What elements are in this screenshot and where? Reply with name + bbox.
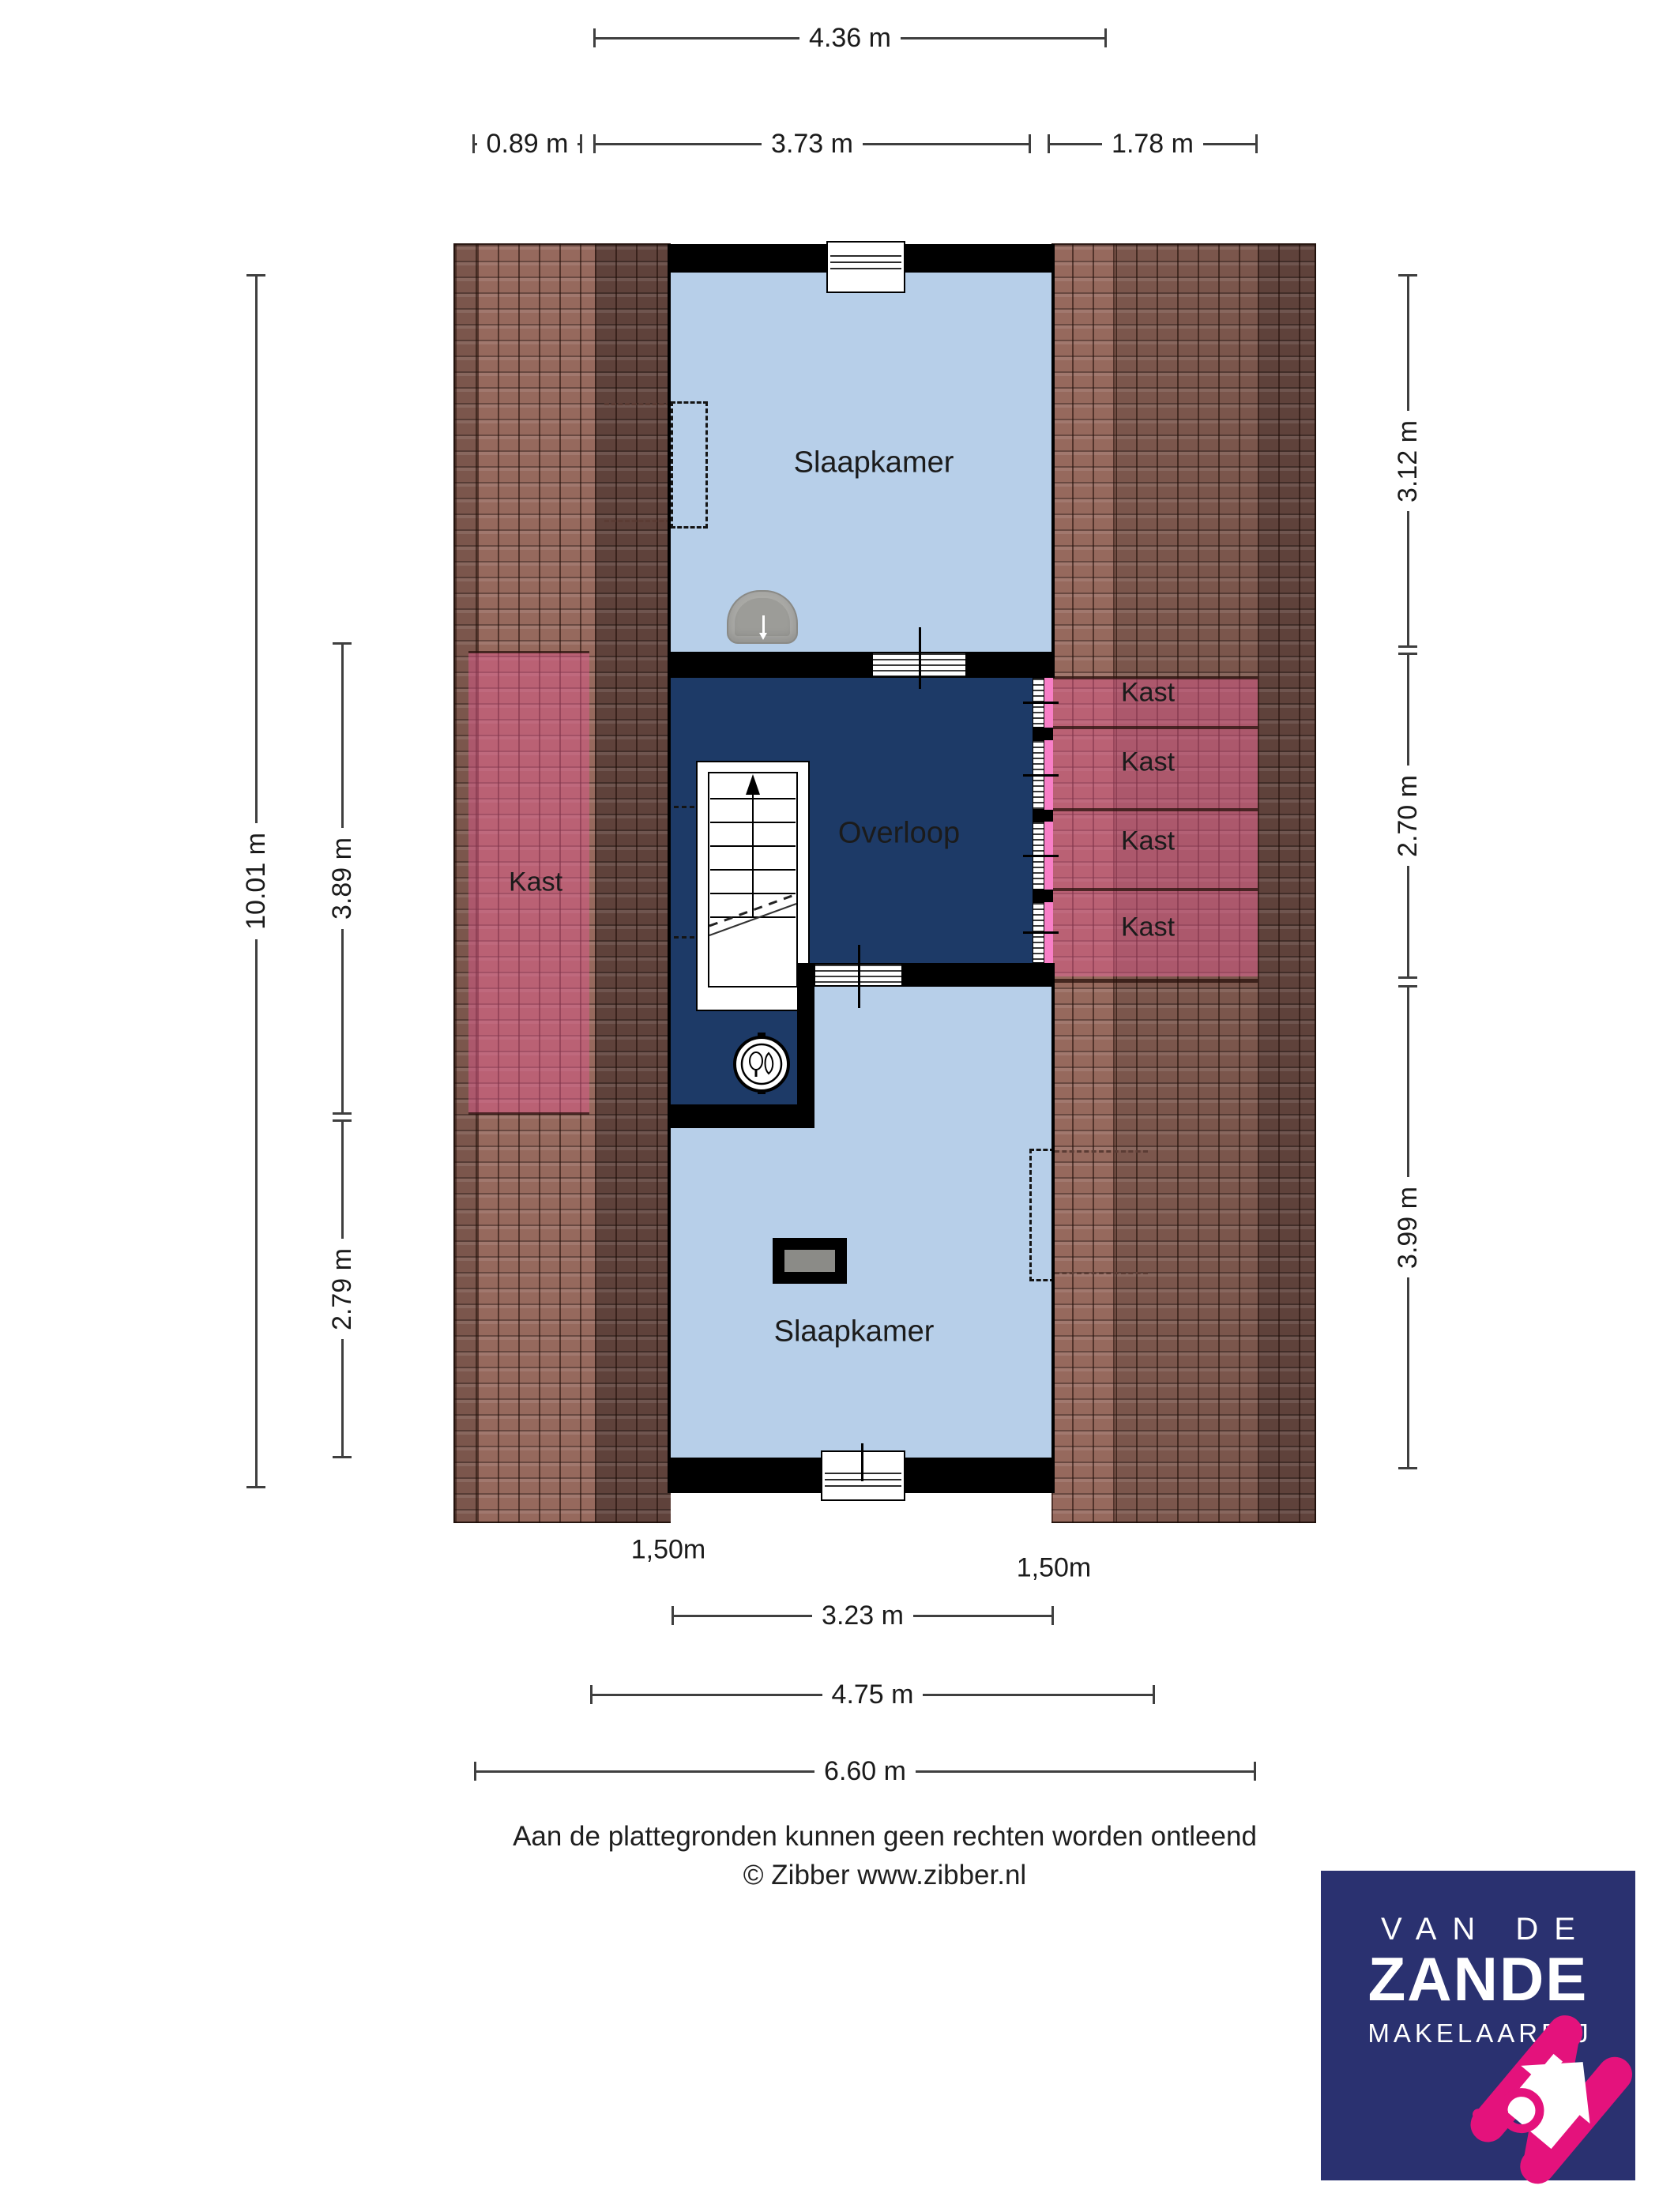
- window-center-tick: [858, 945, 860, 1008]
- wall-top: [671, 244, 826, 273]
- dim-line: [1407, 276, 1409, 411]
- label-bedroom-bottom: Slaapkamer: [774, 1315, 935, 1349]
- dim-line: [577, 143, 580, 145]
- dim-line: [341, 645, 344, 828]
- dormer-dash-line: [1055, 1272, 1148, 1274]
- stair-dash-stub: [674, 936, 694, 939]
- dim-line: [341, 929, 344, 1112]
- wall-top: [905, 244, 1051, 273]
- disclaimer-line-2: © Zibber www.zibber.nl: [276, 1860, 1493, 1891]
- toilet-icon: [732, 1033, 792, 1094]
- label-bedroom-top: Slaapkamer: [794, 446, 954, 480]
- dim-right-bottom: 3.99 m: [1392, 985, 1424, 1469]
- dim-line: [596, 143, 762, 145]
- floorplan-page: 4.36 m 0.89 m 3.73 m 1.78 m 10.01 m 3.89…: [0, 0, 1659, 2212]
- door-center-tick: [1023, 855, 1059, 857]
- dim-line: [674, 1615, 812, 1617]
- window-center-tick: [861, 1443, 863, 1481]
- dim-line: [341, 1122, 344, 1239]
- dim-top-right: 1.78 m: [1048, 128, 1258, 160]
- dim-line: [1407, 655, 1409, 766]
- dim-bottom-inner: 3.23 m: [671, 1600, 1054, 1631]
- dim-label: 0.89 m: [477, 129, 578, 160]
- disclaimer: Aan de plattegronden kunnen geen rechten…: [276, 1821, 1493, 1891]
- logo-text-zande: ZANDE: [1321, 1947, 1635, 2012]
- door-center-tick: [1023, 702, 1059, 704]
- sink: [727, 590, 798, 644]
- dim-label: 3.23 m: [812, 1601, 913, 1631]
- dormer-dash-line: [604, 520, 671, 522]
- dim-line: [901, 37, 1104, 39]
- dim-label: 4.75 m: [822, 1680, 924, 1710]
- disclaimer-line-1: Aan de plattegronden kunnen geen rechten…: [276, 1821, 1493, 1853]
- wall-landing-top: [671, 652, 871, 678]
- wall-wc-bottom: [671, 1104, 814, 1128]
- dim-right-top: 3.12 m: [1392, 274, 1424, 648]
- dim-line: [863, 143, 1029, 145]
- dim-line: [1203, 143, 1255, 145]
- table-top: [784, 1250, 835, 1272]
- label-landing: Overloop: [838, 817, 960, 851]
- stair-dash-stub: [674, 806, 694, 808]
- roof-divider: [468, 651, 589, 653]
- wall-closet-divider: [1033, 728, 1053, 740]
- wall-bottom: [671, 1458, 821, 1493]
- label-closet-right-2: Kast: [1121, 747, 1175, 778]
- label-closet-left: Kast: [509, 867, 562, 898]
- door-center-tick: [1023, 931, 1059, 934]
- dim-line: [916, 1770, 1254, 1773]
- dormer-dash-line: [604, 403, 671, 405]
- faucet-icon: [762, 615, 765, 634]
- roof-divider: [468, 1112, 589, 1115]
- roof-divider: [1053, 979, 1258, 983]
- roof-right-outer-facet: [1258, 243, 1316, 1523]
- stair-cut-line: [709, 890, 796, 939]
- table: [773, 1238, 847, 1284]
- stair-up-arrow-icon: [746, 774, 760, 795]
- dim-top-mid: 3.73 m: [593, 128, 1031, 160]
- dim-label: 3.89 m: [327, 828, 358, 929]
- logo-text-van-de: VAN DE: [1321, 1871, 1635, 1947]
- wall-side-right: [1051, 244, 1055, 678]
- dim-line: [476, 1770, 814, 1773]
- wall-side-left: [668, 244, 671, 1493]
- dormer-outline-top-left: [671, 401, 708, 529]
- dim-line: [1407, 1277, 1409, 1467]
- roof-left-inner-facet: [595, 243, 671, 1523]
- dim-line: [255, 939, 258, 1486]
- roof-divider: [1053, 888, 1258, 891]
- dim-line: [1050, 143, 1102, 145]
- dim-bottom-mid: 4.75 m: [590, 1679, 1155, 1710]
- window-glazing: [830, 255, 901, 269]
- dim-line: [923, 1694, 1153, 1696]
- dormer-dash-line: [1055, 1150, 1148, 1153]
- floor-plan: Slaapkamer Overloop Slaapkamer Kast Kast…: [453, 243, 1316, 1523]
- label-closet-right-4: Kast: [1121, 912, 1175, 943]
- dim-label: 3.99 m: [1393, 1177, 1424, 1278]
- dim-bottom-overall: 6.60 m: [474, 1755, 1256, 1787]
- wall-side-right: [1051, 963, 1055, 1493]
- dim-right-mid: 2.70 m: [1392, 653, 1424, 979]
- dim-left-upper: 3.89 m: [326, 642, 358, 1115]
- agency-logo: VAN DE ZANDE MAKELAARDIJ: [1321, 1871, 1635, 2180]
- dim-line: [592, 1694, 822, 1696]
- wall-closet-divider: [1033, 890, 1053, 902]
- dim-line: [1407, 866, 1409, 976]
- wall-landing-top: [967, 652, 1051, 678]
- dim-window-left: 1,50m: [631, 1535, 706, 1566]
- wall-landing-bottom: [797, 963, 814, 987]
- logo-house-magnifier-icon: [1458, 2006, 1643, 2191]
- roof-divider: [1053, 808, 1258, 811]
- dim-label: 3.12 m: [1393, 411, 1424, 512]
- dim-line: [255, 276, 258, 823]
- dim-line: [341, 1339, 344, 1456]
- wall-bottom: [905, 1458, 1051, 1493]
- dim-label: 3.73 m: [762, 129, 863, 160]
- dim-window-right: 1,50m: [1017, 1553, 1092, 1584]
- door-center-tick: [1023, 774, 1059, 777]
- dim-line: [913, 1615, 1051, 1617]
- dim-left-overall: 10.01 m: [240, 274, 272, 1488]
- dim-line: [596, 37, 799, 39]
- roof-divider: [1053, 726, 1258, 729]
- wall-closet-divider: [1033, 810, 1053, 822]
- dim-top-overall: 4.36 m: [593, 22, 1107, 54]
- dim-line: [1407, 987, 1409, 1177]
- dim-label: 10.01 m: [241, 823, 272, 939]
- window-top: [826, 241, 905, 293]
- dim-label: 6.60 m: [814, 1756, 916, 1787]
- dim-label: 4.36 m: [799, 23, 901, 54]
- dim-line: [1407, 511, 1409, 645]
- label-closet-right-1: Kast: [1121, 678, 1175, 709]
- dim-top-left: 0.89 m: [472, 128, 582, 160]
- wall-landing-bottom: [903, 963, 1051, 987]
- dim-label: 1.78 m: [1102, 129, 1203, 160]
- dim-left-lower: 2.79 m: [326, 1119, 358, 1458]
- label-closet-right-3: Kast: [1121, 826, 1175, 857]
- dim-label: 2.70 m: [1393, 766, 1424, 867]
- window-center-tick: [919, 627, 921, 689]
- dim-label: 2.79 m: [327, 1239, 358, 1340]
